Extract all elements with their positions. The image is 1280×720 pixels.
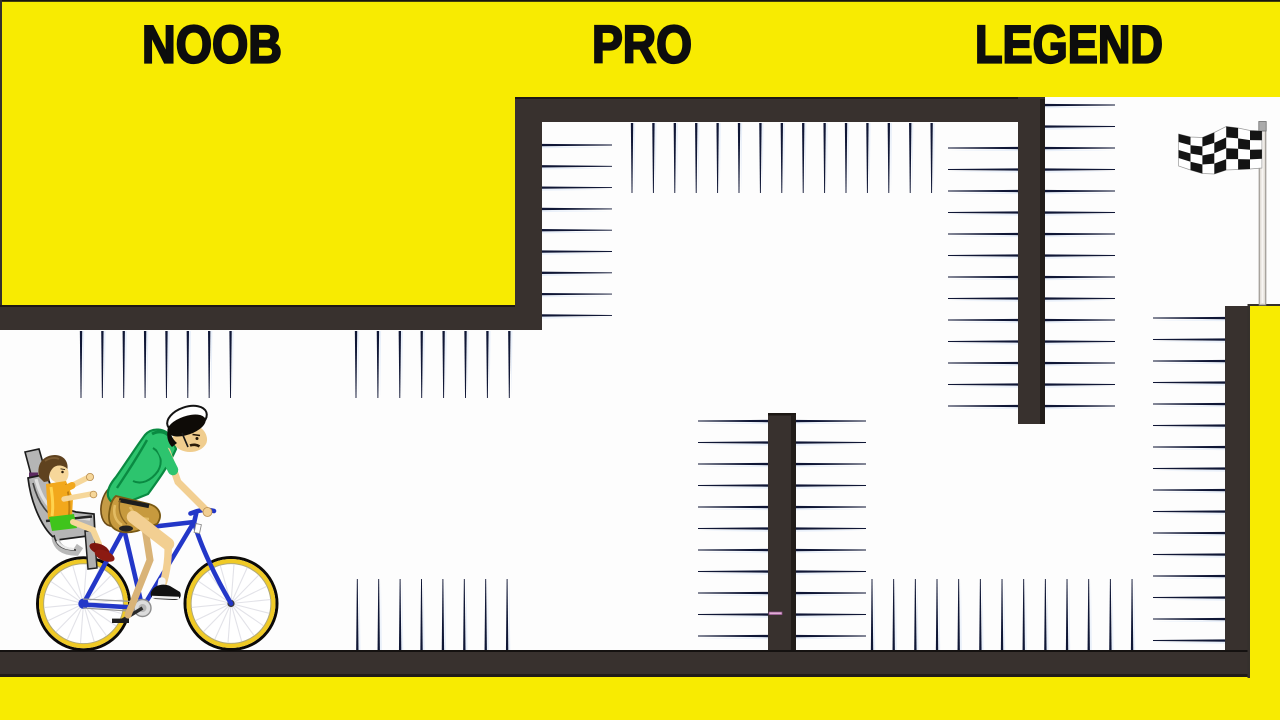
svg-text:PRO: PRO xyxy=(592,16,692,75)
svg-text:LEGEND: LEGEND xyxy=(975,16,1163,75)
svg-text:NOOB: NOOB xyxy=(142,16,282,75)
